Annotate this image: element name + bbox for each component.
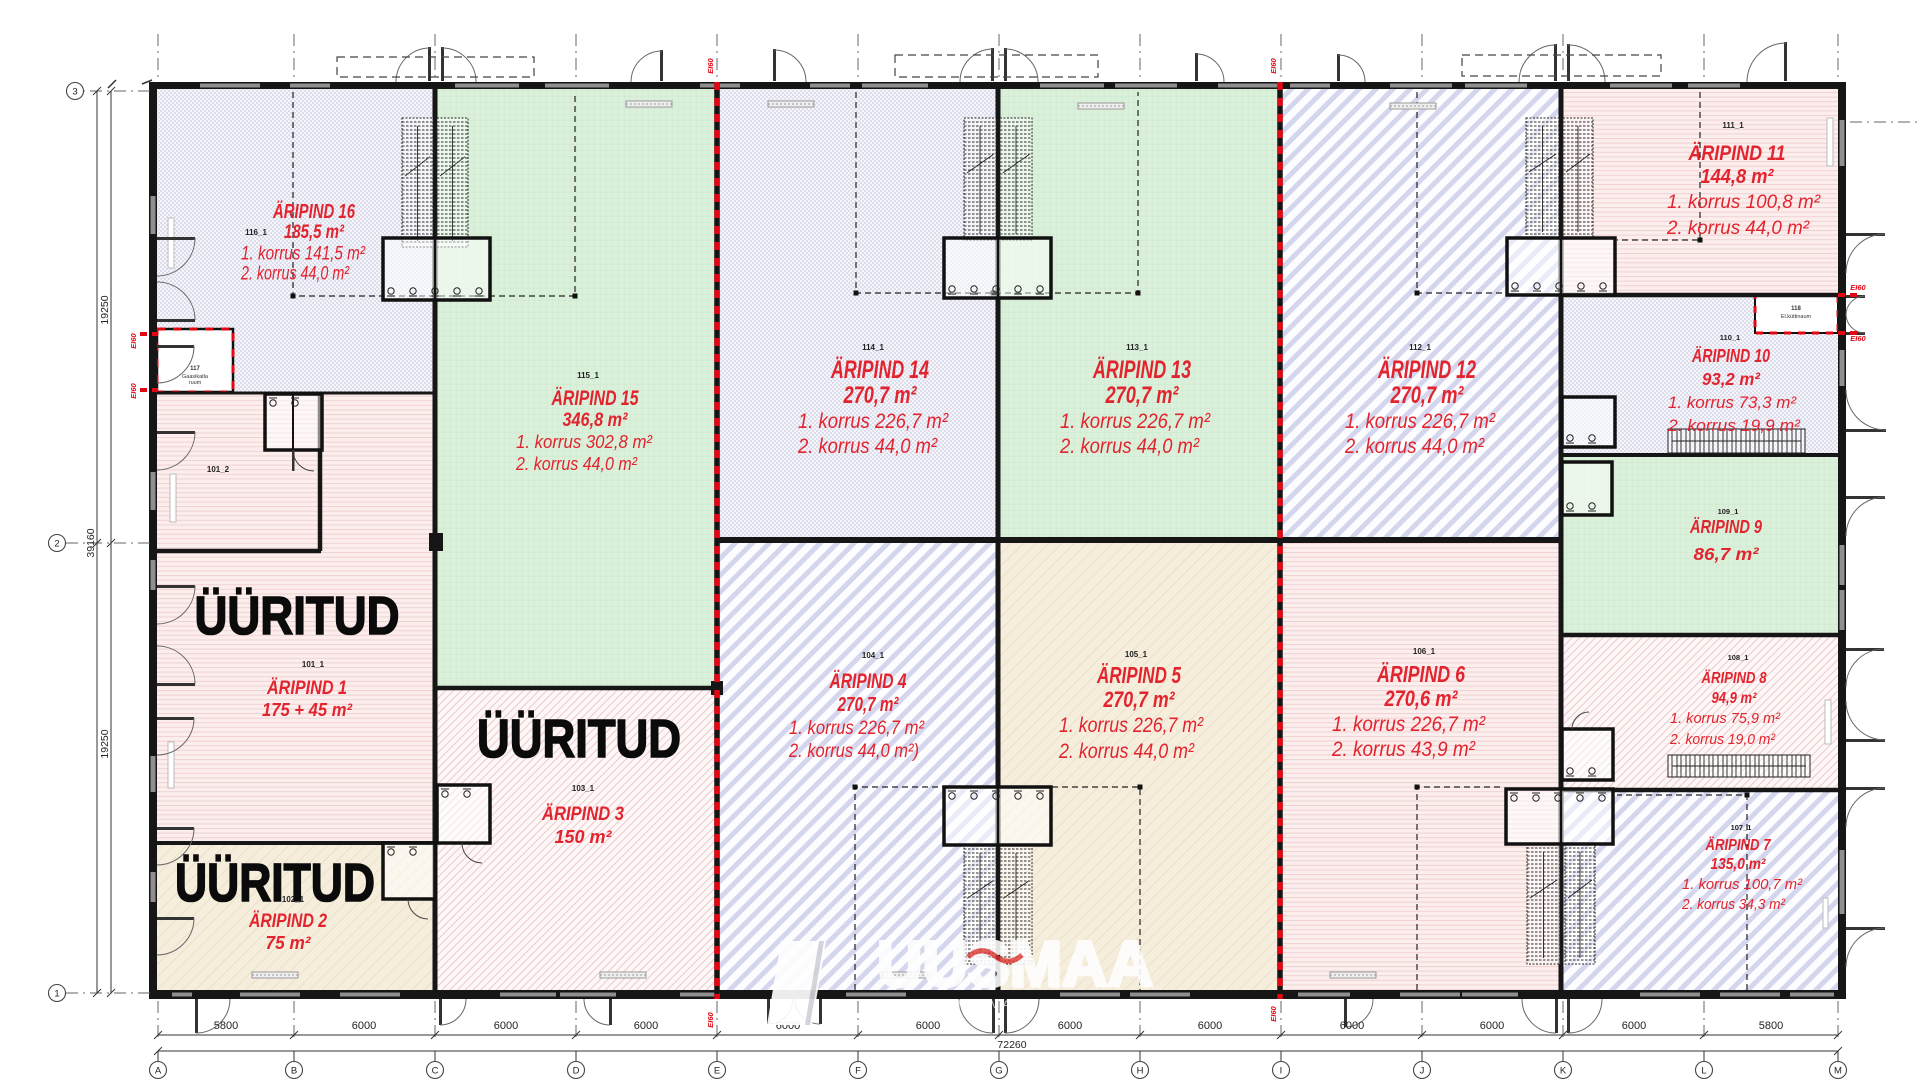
svg-text:ÄRIPIND 1: ÄRIPIND 1 [266,678,347,699]
svg-text:ÄRIPIND 7: ÄRIPIND 7 [1705,836,1772,854]
svg-text:112_1: 112_1 [1409,343,1431,352]
svg-text:109_1: 109_1 [1718,507,1739,516]
svg-text:ÄRIPIND 5: ÄRIPIND 5 [1096,662,1181,688]
svg-text:ÜÜRITUD: ÜÜRITUD [175,853,375,913]
svg-text:346,8 m²: 346,8 m² [563,409,628,431]
svg-text:ÄRIPIND 9: ÄRIPIND 9 [1689,517,1762,537]
svg-text:270,7 m²: 270,7 m² [843,382,918,409]
svg-text:1. korrus 73,3 m²: 1. korrus 73,3 m² [1668,393,1797,412]
svg-text:1. korrus 226,7 m²: 1. korrus 226,7 m² [1060,409,1211,433]
svg-text:103_1: 103_1 [572,784,595,793]
svg-text:118: 118 [1791,306,1801,312]
svg-text:El.küttinaum: El.küttinaum [1781,314,1812,320]
svg-text:ruum: ruum [189,380,202,386]
svg-text:2. korrus 44,0 m²: 2. korrus 44,0 m² [1344,434,1485,458]
svg-text:19250: 19250 [99,295,111,324]
svg-text:ÄRIPIND 8: ÄRIPIND 8 [1701,669,1767,687]
svg-text:K: K [1560,1066,1567,1077]
svg-text:144,8 m²: 144,8 m² [1701,166,1775,188]
svg-text:6000: 6000 [634,1020,658,1032]
svg-text:115_1: 115_1 [577,371,599,380]
svg-text:ÄRIPIND 15: ÄRIPIND 15 [551,387,639,410]
svg-text:107_1: 107_1 [1731,823,1752,832]
svg-text:106_1: 106_1 [1413,647,1436,656]
svg-text:KINNISVARABÜROO: KINNISVARABÜROO [924,999,1105,1011]
svg-text:E: E [714,1066,720,1077]
svg-text:101_2: 101_2 [207,465,230,474]
svg-text:1. korrus 75,9 m²: 1. korrus 75,9 m² [1670,710,1781,727]
svg-text:EI60: EI60 [1269,57,1278,73]
svg-text:270,7 m²: 270,7 m² [1105,382,1180,409]
svg-text:ÄRIPIND 16: ÄRIPIND 16 [272,200,355,223]
svg-text:1. korrus 226,7 m²: 1. korrus 226,7 m² [1059,714,1204,737]
svg-text:39160: 39160 [85,528,97,557]
svg-text:6000: 6000 [494,1020,518,1032]
svg-text:ÄRIPIND 14: ÄRIPIND 14 [830,356,929,384]
svg-text:B: B [291,1066,297,1077]
svg-text:C: C [432,1066,439,1077]
svg-text:ÄRIPIND 3: ÄRIPIND 3 [541,804,624,825]
svg-text:19250: 19250 [99,729,111,758]
svg-text:EI60: EI60 [1269,1005,1278,1021]
svg-text:135,0 m²: 135,0 m² [1711,856,1767,873]
svg-text:2. korrus 44,0 m²: 2. korrus 44,0 m² [515,453,638,474]
svg-text:I: I [1280,1066,1283,1077]
svg-text:6000: 6000 [1058,1020,1082,1032]
svg-text:1. korrus 226,7 m²: 1. korrus 226,7 m² [1345,409,1496,433]
svg-text:270,7 m²: 270,7 m² [1390,382,1465,409]
svg-text:1. korrus 226,7 m²: 1. korrus 226,7 m² [798,409,949,433]
svg-text:ÄRIPIND 4: ÄRIPIND 4 [829,669,907,693]
svg-text:1. korrus 226,7 m²: 1. korrus 226,7 m² [789,718,925,739]
svg-text:UUSMAA: UUSMAA [877,928,1153,1000]
svg-text:93,2 m²: 93,2 m² [1702,369,1761,389]
svg-text:2. korrus 44,0 m²: 2. korrus 44,0 m² [1058,740,1195,763]
svg-text:270,6 m²: 270,6 m² [1384,686,1458,711]
svg-text:117: 117 [190,366,200,372]
svg-text:1. korrus 226,7 m²: 1. korrus 226,7 m² [1332,713,1486,736]
svg-text:A: A [155,1066,162,1077]
svg-text:1. korrus 302,8 m²: 1. korrus 302,8 m² [516,431,653,452]
svg-text:2. korrus 43,9 m²: 2. korrus 43,9 m² [1331,738,1476,761]
svg-text:6000: 6000 [1622,1020,1646,1032]
svg-text:EI60: EI60 [1850,334,1866,343]
svg-text:270,7 m²: 270,7 m² [1103,687,1175,712]
svg-text:2. korrus 44,0 m²): 2. korrus 44,0 m²) [788,741,919,762]
svg-text:2. korrus 44,0 m²: 2. korrus 44,0 m² [1059,434,1200,458]
svg-text:185,5 m²: 185,5 m² [284,222,345,243]
svg-text:2: 2 [54,539,59,550]
svg-text:6000: 6000 [916,1020,940,1032]
svg-text:2. korrus 44,0 m²: 2. korrus 44,0 m² [240,264,349,285]
svg-text:105_1: 105_1 [1125,650,1148,659]
svg-text:108_1: 108_1 [1728,653,1749,662]
svg-text:ÄRIPIND 13: ÄRIPIND 13 [1092,356,1191,384]
svg-text:6000: 6000 [1340,1020,1364,1032]
svg-text:EI60: EI60 [129,382,138,398]
svg-text:2. korrus 44,0 m²: 2. korrus 44,0 m² [1666,218,1810,239]
svg-text:110_1: 110_1 [1720,333,1740,342]
svg-text:J: J [1420,1066,1425,1077]
svg-text:1. korrus 100,7 m²: 1. korrus 100,7 m² [1682,876,1803,893]
svg-text:EI60: EI60 [706,57,715,73]
svg-text:2. korrus 44,0 m²: 2. korrus 44,0 m² [797,434,938,458]
svg-text:6000: 6000 [1480,1020,1504,1032]
svg-text:EI60: EI60 [706,1011,715,1027]
svg-text:M: M [1834,1066,1842,1077]
svg-text:G: G [995,1066,1002,1077]
svg-text:2. korrus 34,3 m²: 2. korrus 34,3 m² [1681,896,1786,913]
svg-text:H: H [1137,1066,1144,1077]
svg-text:1: 1 [54,989,59,1000]
svg-text:ÄRIPIND 11: ÄRIPIND 11 [1688,142,1786,165]
svg-text:ÄRIPIND 2: ÄRIPIND 2 [248,911,327,932]
svg-text:D: D [573,1066,580,1077]
svg-text:270,7 m²: 270,7 m² [837,694,900,716]
svg-text:94,9 m²: 94,9 m² [1712,690,1758,707]
svg-text:EI60: EI60 [1850,283,1866,292]
svg-text:6000: 6000 [352,1020,376,1032]
svg-text:5800: 5800 [214,1020,238,1032]
svg-text:6000: 6000 [1198,1020,1222,1032]
svg-text:113_1: 113_1 [1126,343,1148,352]
svg-text:104_1: 104_1 [862,651,885,660]
svg-text:2. korrus 19,9 m²: 2. korrus 19,9 m² [1667,416,1801,435]
svg-text:101_1: 101_1 [302,660,325,669]
svg-text:1. korrus 141,5 m²: 1. korrus 141,5 m² [241,244,366,265]
svg-text:F: F [855,1066,861,1077]
svg-text:150 m²: 150 m² [555,827,613,847]
svg-text:3: 3 [72,87,77,98]
svg-text:ÜÜRITUD: ÜÜRITUD [477,709,681,769]
svg-text:116_1: 116_1 [245,228,267,237]
svg-text:2. korrus 19,0 m²: 2. korrus 19,0 m² [1669,731,1776,748]
svg-text:72260: 72260 [997,1039,1026,1051]
svg-text:EI60: EI60 [129,332,138,348]
svg-text:L: L [1701,1066,1706,1077]
svg-text:75 m²: 75 m² [266,933,312,953]
svg-text:ÄRIPIND 12: ÄRIPIND 12 [1377,356,1476,384]
svg-text:175 + 45 m²: 175 + 45 m² [262,700,353,720]
svg-text:114_1: 114_1 [862,343,884,352]
svg-text:ÜÜRITUD: ÜÜRITUD [195,586,400,646]
svg-text:1. korrus 100,8 m²: 1. korrus 100,8 m² [1667,192,1821,213]
svg-text:5800: 5800 [1759,1020,1783,1032]
svg-text:86,7 m²: 86,7 m² [1694,544,1760,564]
svg-text:ÄRIPIND 10: ÄRIPIND 10 [1691,346,1770,366]
svg-text:111_1: 111_1 [1722,121,1744,130]
svg-text:ÄRIPIND 6: ÄRIPIND 6 [1376,661,1465,687]
